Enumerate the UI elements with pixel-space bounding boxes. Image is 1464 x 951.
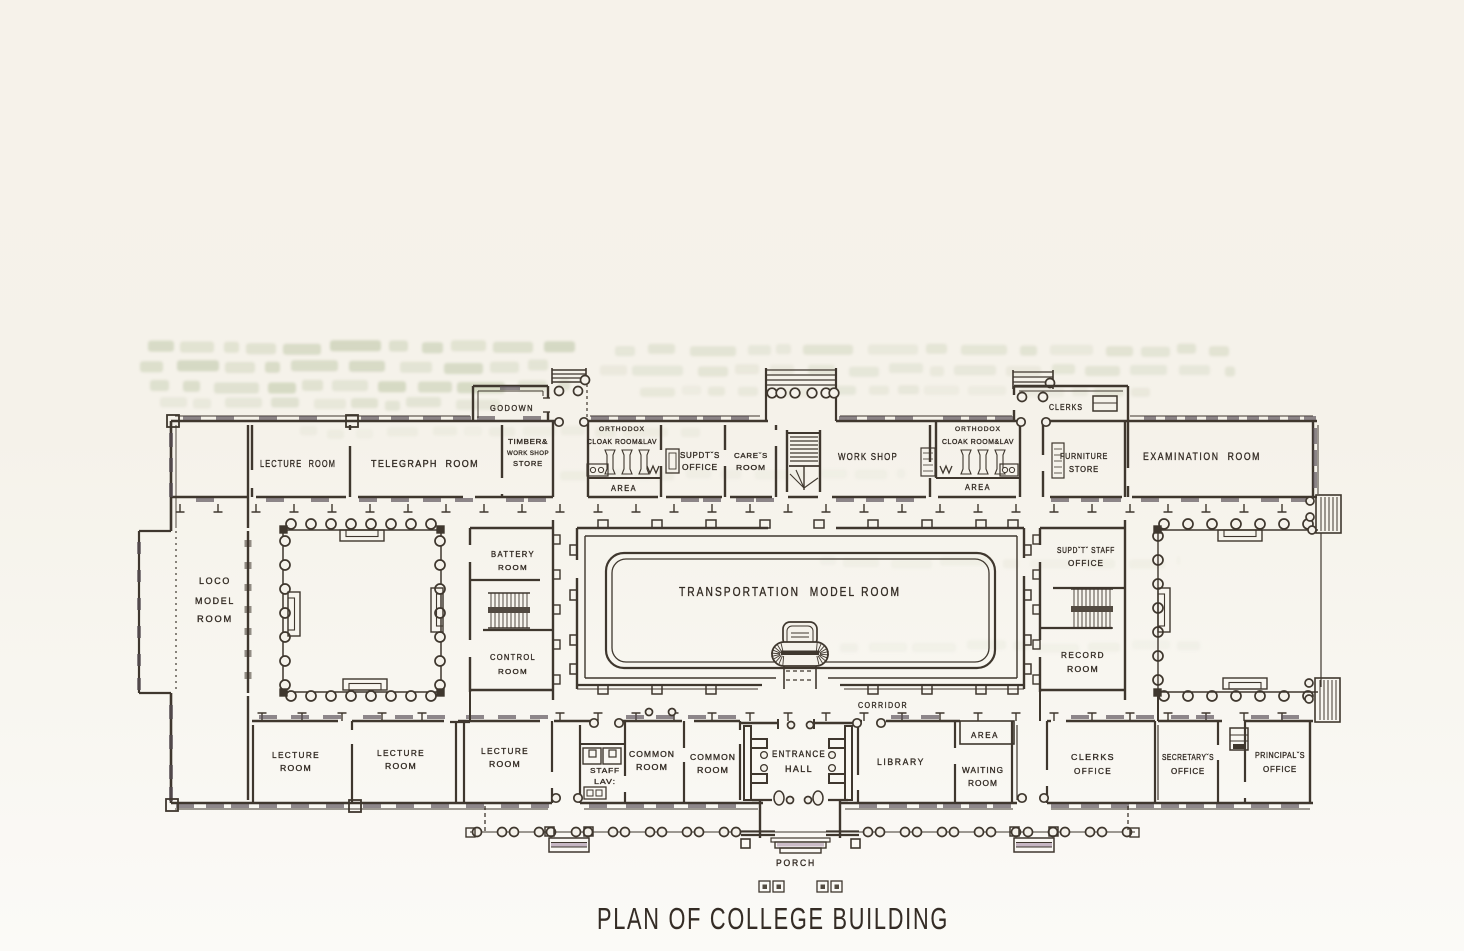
svg-text:LAV:: LAV:: [594, 777, 616, 786]
svg-text:ROOM: ROOM: [736, 463, 766, 472]
svg-text:STORE: STORE: [513, 459, 543, 468]
svg-text:LECTURE: LECTURE: [272, 750, 320, 760]
svg-text:OFFICE: OFFICE: [1074, 766, 1112, 776]
svg-text:TIMBER&: TIMBER&: [508, 437, 548, 446]
svg-text:RECORD: RECORD: [1061, 651, 1105, 660]
svg-text:ORTHODOX: ORTHODOX: [599, 426, 645, 433]
svg-text:CLOAK ROOM&LAV: CLOAK ROOM&LAV: [587, 437, 657, 446]
svg-text:ROOM: ROOM: [385, 762, 417, 771]
svg-text:OFFICE: OFFICE: [1263, 765, 1297, 774]
svg-text:AREA: AREA: [965, 483, 991, 492]
svg-text:BATTERY: BATTERY: [491, 550, 535, 559]
svg-text:CLOAK ROOM&LAV: CLOAK ROOM&LAV: [942, 437, 1014, 446]
svg-text:SUPDTˇS: SUPDTˇS: [680, 451, 720, 460]
svg-text:STAFF: STAFF: [590, 766, 620, 775]
svg-text:CONTROL: CONTROL: [490, 653, 536, 662]
svg-text:ROOM: ROOM: [489, 760, 521, 769]
svg-text:ROOM: ROOM: [1067, 665, 1099, 674]
svg-text:ORTHODOX: ORTHODOX: [955, 426, 1001, 433]
svg-text:LIBRARY: LIBRARY: [877, 757, 925, 768]
svg-text:WORK SHOP: WORK SHOP: [507, 450, 549, 457]
svg-text:LOCO: LOCO: [199, 576, 231, 587]
svg-text:OFFICE: OFFICE: [1068, 559, 1104, 568]
svg-text:PLAN OF COLLEGE BUILDING: PLAN OF COLLEGE BUILDING: [597, 901, 949, 936]
svg-text:ROOM: ROOM: [636, 763, 668, 772]
svg-text:ROOM: ROOM: [197, 614, 233, 625]
svg-text:CORRIDOR: CORRIDOR: [858, 701, 908, 710]
svg-text:COMMON: COMMON: [629, 749, 675, 759]
svg-text:LECTURE: LECTURE: [481, 746, 529, 756]
svg-text:ROOM: ROOM: [697, 766, 729, 775]
svg-text:TELEGRAPH ROOM: TELEGRAPH ROOM: [371, 459, 479, 470]
svg-text:SECRETARYˇS: SECRETARYˇS: [1162, 753, 1214, 762]
svg-text:ROOM: ROOM: [498, 563, 528, 572]
svg-text:OFFICE: OFFICE: [1171, 767, 1205, 776]
svg-text:ROOM: ROOM: [280, 764, 312, 773]
svg-text:WORK SHOP: WORK SHOP: [838, 452, 898, 463]
svg-text:HALL: HALL: [785, 764, 813, 774]
svg-text:MODEL: MODEL: [195, 596, 235, 607]
svg-text:GODOWN: GODOWN: [490, 404, 534, 413]
svg-text:AREA: AREA: [611, 484, 637, 493]
svg-text:LECTURE: LECTURE: [377, 748, 425, 758]
svg-text:EXAMINATION ROOM: EXAMINATION ROOM: [1143, 451, 1261, 463]
svg-text:OFFICE: OFFICE: [682, 463, 718, 472]
svg-text:ROOM: ROOM: [498, 667, 528, 676]
svg-text:AREA: AREA: [971, 731, 999, 740]
svg-text:FURNITURE: FURNITURE: [1060, 452, 1108, 461]
svg-text:CLERKS: CLERKS: [1071, 752, 1115, 762]
svg-text:COMMON: COMMON: [690, 752, 736, 762]
svg-text:CLERKS: CLERKS: [1049, 403, 1083, 412]
svg-text:TRANSPORTATION MODEL ROOM: TRANSPORTATION MODEL ROOM: [679, 585, 901, 599]
svg-text:SUPDˇTˇ STAFF: SUPDˇTˇ STAFF: [1057, 546, 1115, 555]
svg-text:LECTURE ROOM: LECTURE ROOM: [260, 459, 336, 470]
svg-text:PRINCIPALˇS: PRINCIPALˇS: [1255, 751, 1305, 760]
svg-text:ENTRANCE: ENTRANCE: [772, 749, 826, 759]
svg-text:WAITING: WAITING: [962, 766, 1004, 775]
svg-text:ROOM: ROOM: [968, 779, 998, 788]
svg-text:CAREˇS: CAREˇS: [734, 451, 768, 460]
svg-text:STORE: STORE: [1069, 465, 1099, 474]
svg-text:PORCH: PORCH: [776, 858, 816, 869]
